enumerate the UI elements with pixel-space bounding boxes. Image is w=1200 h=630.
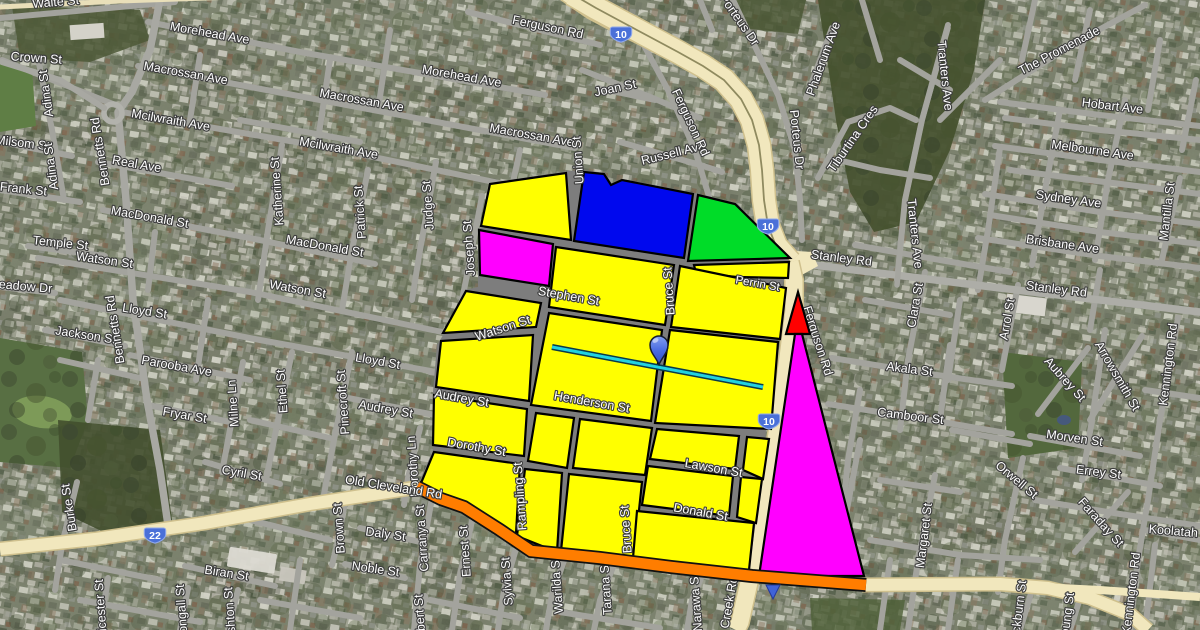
svg-text:10: 10 (615, 29, 627, 41)
svg-text:10: 10 (763, 416, 775, 428)
svg-text:10: 10 (762, 221, 774, 233)
svg-text:22: 22 (149, 530, 161, 542)
